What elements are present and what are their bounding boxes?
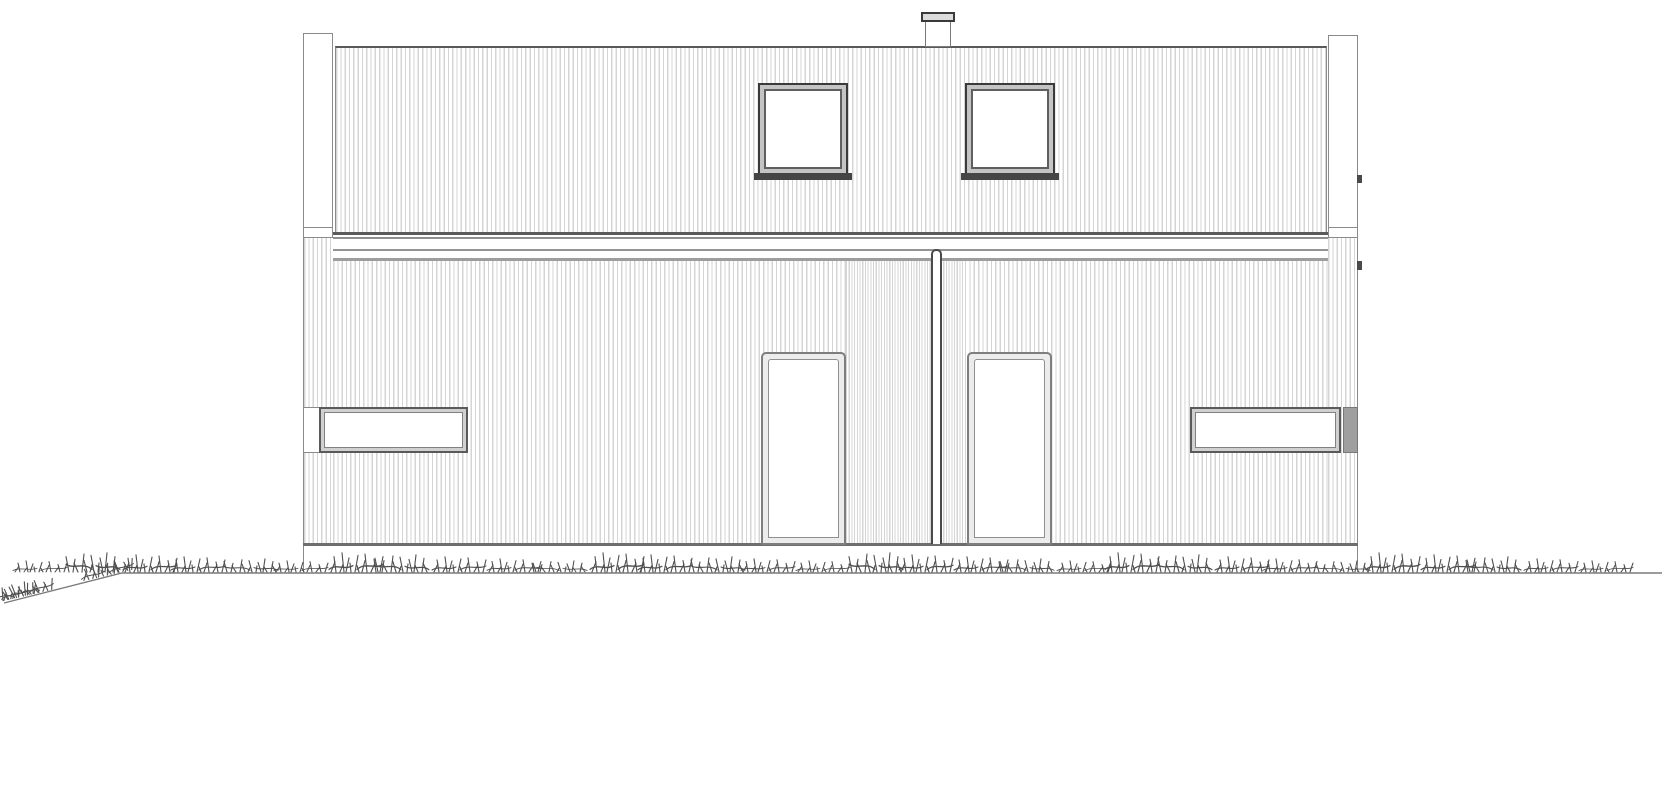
eave-band [333,232,1328,261]
window-glass [1195,412,1336,448]
upper-window-right [965,83,1055,175]
ground-line [4,573,1662,603]
corner-cladding-left [303,238,333,545]
plinth [303,546,1358,572]
eave-band-mid-line [333,249,1328,251]
strip-window-left [319,407,468,453]
party-wall-joint [931,249,942,544]
strip-window-left-return [303,407,320,453]
post-break-line [304,227,332,228]
upper-window-left [758,83,848,175]
eave-band-bottom-line [333,258,1328,261]
elevation-drawing [0,0,1670,800]
window-sill-right [961,173,1059,180]
roof-flue-cap [921,12,955,22]
window-glass [764,89,842,169]
roof-flue [925,20,951,47]
post-break-line [1329,227,1357,228]
window-glass [324,412,463,448]
corner-cladding-right [1328,238,1358,545]
eave-band-top-line [333,232,1328,235]
door-glass [974,359,1045,538]
edge-bracket-upper [1357,175,1362,183]
window-sill-left [754,173,852,180]
strip-window-right-return [1343,407,1358,453]
door-glass [768,359,839,538]
corner-post-left [303,33,333,238]
entrance-door-right [967,352,1052,545]
window-glass [971,89,1049,169]
cladding-dense-strip [846,261,967,545]
entrance-door-left [761,352,846,545]
edge-bracket-lower [1357,261,1362,270]
eave-band-shadow-line [333,237,1328,239]
corner-post-right [1328,35,1358,238]
strip-window-right [1190,407,1341,453]
